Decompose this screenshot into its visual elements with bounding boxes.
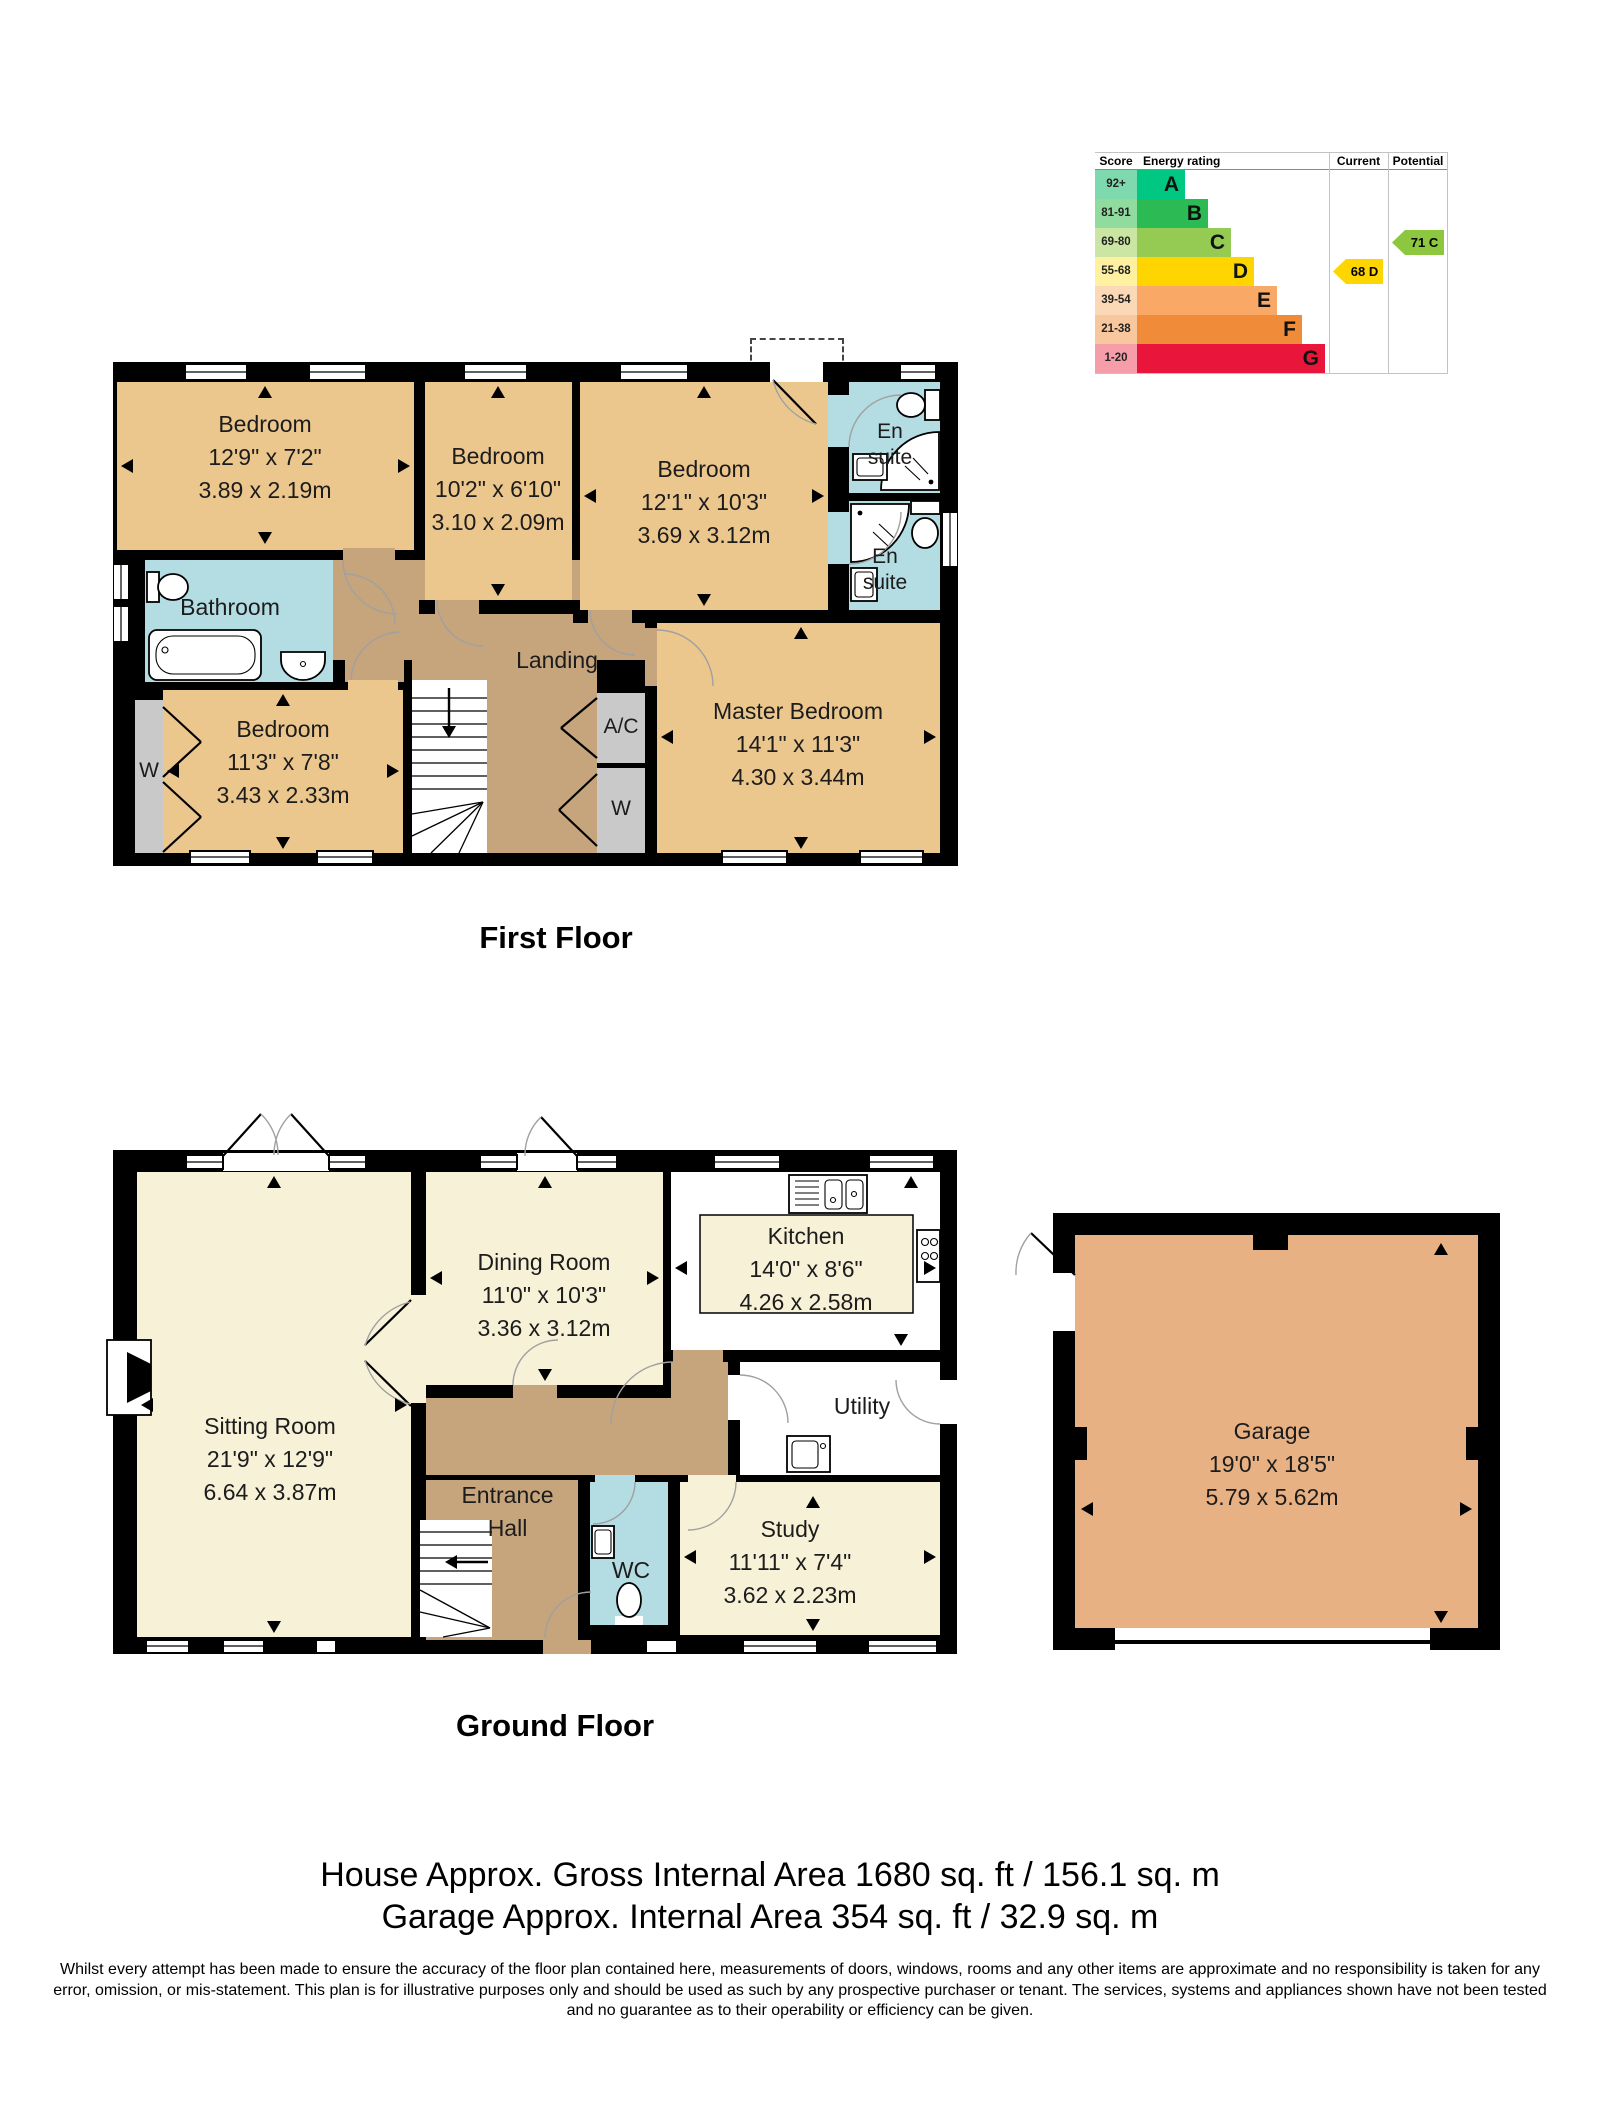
closet-label-wardrobe: W xyxy=(596,796,646,822)
closet-label-ac: A/C xyxy=(596,714,646,740)
epc-header-score: Score xyxy=(1095,152,1137,170)
room-label-sitting: Sitting Room21'9" x 12'9"6.64 x 3.87m xyxy=(150,1410,390,1509)
utility-sink-icon xyxy=(787,1436,830,1472)
room-label-bathroom: Bathroom xyxy=(150,591,310,624)
epc-band-f: 21-38F xyxy=(1095,315,1325,344)
room-label-bedroom-4: Bedroom11'3" x 7'8"3.43 x 2.33m xyxy=(173,713,393,812)
epc-header-current: Current xyxy=(1329,152,1388,170)
epc-band-b: 81-91B xyxy=(1095,199,1325,228)
room-label-utility: Utility xyxy=(812,1390,912,1423)
room-sitting xyxy=(137,1172,411,1637)
first-floor-title: First Floor xyxy=(156,920,956,956)
house-area-summary: House Approx. Gross Internal Area 1680 s… xyxy=(0,1856,1540,1895)
room-label-bedroom-2: Bedroom10'2" x 6'10"3.10 x 2.09m xyxy=(398,440,598,539)
epc-header-rating: Energy rating xyxy=(1143,152,1220,170)
epc-bottom-rule xyxy=(1095,373,1448,374)
wc-toilet-icon xyxy=(615,1583,643,1625)
disclaimer-text: Whilst every attempt has been made to en… xyxy=(50,1960,1550,2022)
room-label-kitchen: Kitchen14'0" x 8'6"4.26 x 2.58m xyxy=(696,1220,916,1319)
epc-band-rows: 92+A81-91B69-80C55-68D39-54E21-38F1-20G xyxy=(1095,170,1325,373)
epc-band-g: 1-20G xyxy=(1095,344,1325,373)
epc-band-a: 92+A xyxy=(1095,170,1325,199)
closet-label-wardrobe-left: W xyxy=(124,758,174,784)
room-label-landing: Landing xyxy=(482,644,632,677)
epc-current-arrow: 68 D xyxy=(1333,259,1383,284)
room-label-master-bedroom: Master Bedroom14'1" x 11'3"4.30 x 3.44m xyxy=(673,695,923,794)
room-label-garage: Garage19'0" x 18'5"5.79 x 5.62m xyxy=(1152,1415,1392,1514)
epc-divider-potential xyxy=(1388,152,1389,373)
epc-divider-current xyxy=(1329,152,1330,373)
room-label-wc: WC xyxy=(601,1554,661,1587)
epc-chart: Score Energy rating Current Potential 92… xyxy=(1095,152,1448,374)
epc-band-c: 69-80C xyxy=(1095,228,1325,257)
ensuite2-toilet-icon xyxy=(911,501,940,548)
floorplan-page: Score Energy rating Current Potential 92… xyxy=(0,0,1600,2113)
epc-divider-right xyxy=(1447,152,1448,373)
room-label-dining: Dining Room11'0" x 10'3"3.36 x 3.12m xyxy=(434,1246,654,1345)
garage-area-summary: Garage Approx. Internal Area 354 sq. ft … xyxy=(0,1898,1540,1937)
epc-band-e: 39-54E xyxy=(1095,286,1325,315)
epc-band-d: 55-68D xyxy=(1095,257,1325,286)
room-label-bedroom-3: Bedroom12'1" x 10'3"3.69 x 3.12m xyxy=(594,453,814,552)
ensuite1-toilet-icon xyxy=(897,390,940,420)
epc-header-potential: Potential xyxy=(1388,152,1448,170)
bath-icon xyxy=(149,630,261,680)
kitchen-sink-icon xyxy=(789,1175,867,1213)
room-label-entrance-hall: Entrance Hall xyxy=(445,1479,570,1545)
garage-door-line xyxy=(1115,1640,1430,1644)
room-label-bedroom-1: Bedroom12'9" x 7'2"3.89 x 2.19m xyxy=(145,408,385,507)
room-label-study: Study11'11" x 7'4"3.62 x 2.23m xyxy=(680,1513,900,1612)
epc-potential-arrow: 71 C xyxy=(1392,230,1444,255)
room-label-ensuite-1: En suite xyxy=(856,419,924,471)
hob-icon xyxy=(917,1230,940,1282)
ground-floor-title: Ground Floor xyxy=(155,1708,955,1744)
room-label-ensuite-2: En suite xyxy=(851,544,919,596)
